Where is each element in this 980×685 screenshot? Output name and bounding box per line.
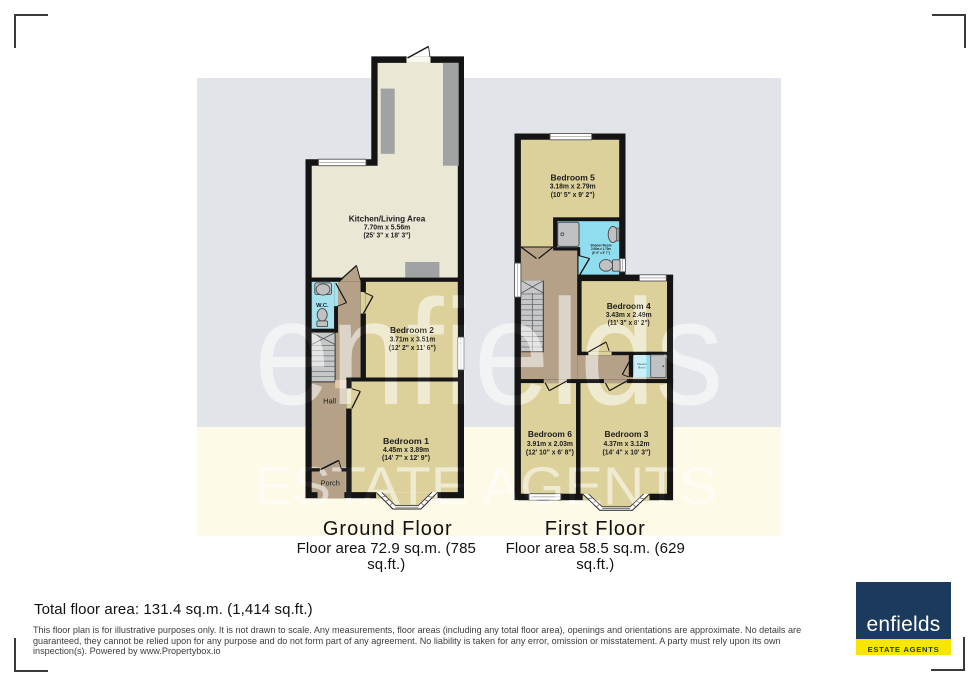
svg-text:enfields: enfields [255,268,724,436]
svg-text:ESTATE AGENTS: ESTATE AGENTS [255,457,718,517]
